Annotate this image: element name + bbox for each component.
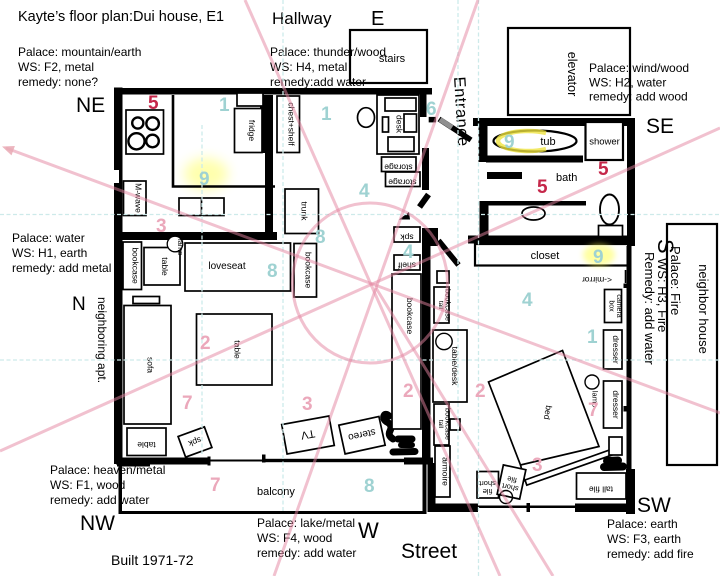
svg-text:closet: closet [531, 250, 560, 262]
svg-text:WS: H2, water: WS: H2, water [589, 76, 666, 90]
svg-text:8: 8 [364, 476, 375, 497]
svg-text:fridge: fridge [247, 120, 257, 142]
svg-text:neighboring apt.: neighboring apt. [95, 297, 109, 383]
svg-text:3: 3 [532, 455, 543, 476]
svg-text:5: 5 [148, 93, 159, 114]
svg-text:bookcase: bookcase [304, 252, 314, 289]
svg-text:Remedy: add water: Remedy: add water [642, 252, 657, 365]
svg-text:Palace: mountain/earth: Palace: mountain/earth [18, 45, 141, 59]
svg-text:remedy: add fire: remedy: add fire [607, 547, 694, 561]
svg-text:3: 3 [156, 216, 167, 237]
svg-text:7: 7 [182, 393, 193, 414]
svg-text:1: 1 [321, 104, 332, 125]
svg-text:Palace: lake/metal: Palace: lake/metal [257, 516, 355, 530]
svg-text:WS: H4, metal: WS: H4, metal [270, 60, 347, 74]
svg-text:N: N [72, 294, 86, 315]
svg-text:3: 3 [302, 394, 313, 415]
svg-text:WS: F4, wood: WS: F4, wood [257, 531, 332, 545]
svg-text:remedy: none?: remedy: none? [18, 75, 98, 89]
svg-text:trunk: trunk [300, 202, 310, 222]
svg-text:Palace: wind/wood: Palace: wind/wood [589, 61, 689, 75]
svg-text:8: 8 [315, 227, 326, 248]
svg-text:4: 4 [359, 181, 370, 202]
svg-text:neighbor house: neighbor house [696, 264, 711, 354]
svg-text:tall: tall [437, 420, 444, 429]
svg-text:NW: NW [80, 512, 115, 535]
svg-text:WS: F2, metal: WS: F2, metal [18, 60, 94, 74]
svg-text:1: 1 [587, 327, 598, 348]
svg-text:shower: shower [589, 137, 620, 148]
svg-text:remedy: add wood: remedy: add wood [589, 90, 688, 104]
svg-text:Palace: earth: Palace: earth [607, 517, 678, 531]
svg-text:Kayte’s floor plan:Dui house,: Kayte’s floor plan:Dui house, E1 [18, 9, 224, 25]
svg-text:W: W [358, 518, 379, 543]
svg-text:elevator: elevator [565, 52, 579, 96]
svg-text:<-mirror: <-mirror [582, 275, 612, 285]
svg-text:loveseat: loveseat [208, 261, 245, 272]
svg-text:7: 7 [210, 475, 221, 496]
svg-text:9: 9 [504, 132, 515, 153]
svg-text:bookcase: bookcase [131, 247, 141, 284]
svg-text:remedy: add water: remedy: add water [257, 546, 356, 560]
svg-text:Palace: water: Palace: water [12, 231, 85, 245]
svg-text:9: 9 [593, 247, 604, 268]
svg-text:4: 4 [403, 242, 414, 263]
svg-text:lamp: lamp [176, 239, 185, 255]
svg-text:chest+shelf: chest+shelf [287, 102, 297, 146]
svg-text:camera: camera [615, 294, 622, 317]
svg-text:dresser: dresser [611, 390, 621, 419]
svg-text:NE: NE [76, 94, 105, 117]
svg-text:5: 5 [598, 159, 609, 180]
svg-text:WS: F1, wood: WS: F1, wood [50, 478, 125, 492]
svg-text:E: E [371, 8, 384, 30]
svg-text:bookcase: bookcase [405, 298, 415, 335]
svg-text:Palace: heaven/metal: Palace: heaven/metal [50, 463, 165, 477]
svg-text:tub: tub [540, 136, 555, 148]
svg-text:box: box [608, 300, 615, 312]
svg-text:balcony: balcony [257, 486, 295, 498]
svg-text:8: 8 [267, 261, 278, 282]
svg-text:Palace: thunder/wood: Palace: thunder/wood [270, 45, 386, 59]
svg-text:Street: Street [401, 540, 457, 563]
svg-text:1: 1 [219, 95, 230, 116]
svg-text:Built 1971-72: Built 1971-72 [111, 552, 194, 568]
svg-text:table: table [137, 440, 156, 450]
svg-text:2: 2 [403, 381, 414, 402]
svg-text:WS: F3, earth: WS: F3, earth [607, 532, 681, 546]
svg-text:2: 2 [475, 381, 486, 402]
svg-text:spk: spk [400, 233, 414, 243]
svg-text:6: 6 [426, 99, 437, 120]
svg-text:SW: SW [637, 494, 671, 517]
svg-text:9: 9 [199, 169, 210, 190]
svg-text:5: 5 [537, 177, 548, 198]
svg-text:file: file [483, 487, 493, 496]
svg-text:bath: bath [556, 172, 577, 184]
svg-text:storage: storage [384, 163, 413, 173]
svg-text:desk: desk [395, 115, 405, 134]
svg-text:4: 4 [522, 290, 533, 311]
svg-text:table: table [160, 257, 170, 276]
svg-text:remedy: add water: remedy: add water [50, 493, 149, 507]
svg-text:Hallway: Hallway [272, 9, 332, 28]
svg-text:WS: H1, earth: WS: H1, earth [12, 246, 87, 260]
svg-text:7: 7 [588, 400, 599, 421]
svg-text:stairs: stairs [379, 53, 406, 65]
svg-text:remedy: add metal: remedy: add metal [12, 261, 111, 275]
svg-text:tall file: tall file [589, 485, 613, 495]
svg-text:SE: SE [646, 115, 674, 138]
svg-text:2: 2 [200, 333, 211, 354]
